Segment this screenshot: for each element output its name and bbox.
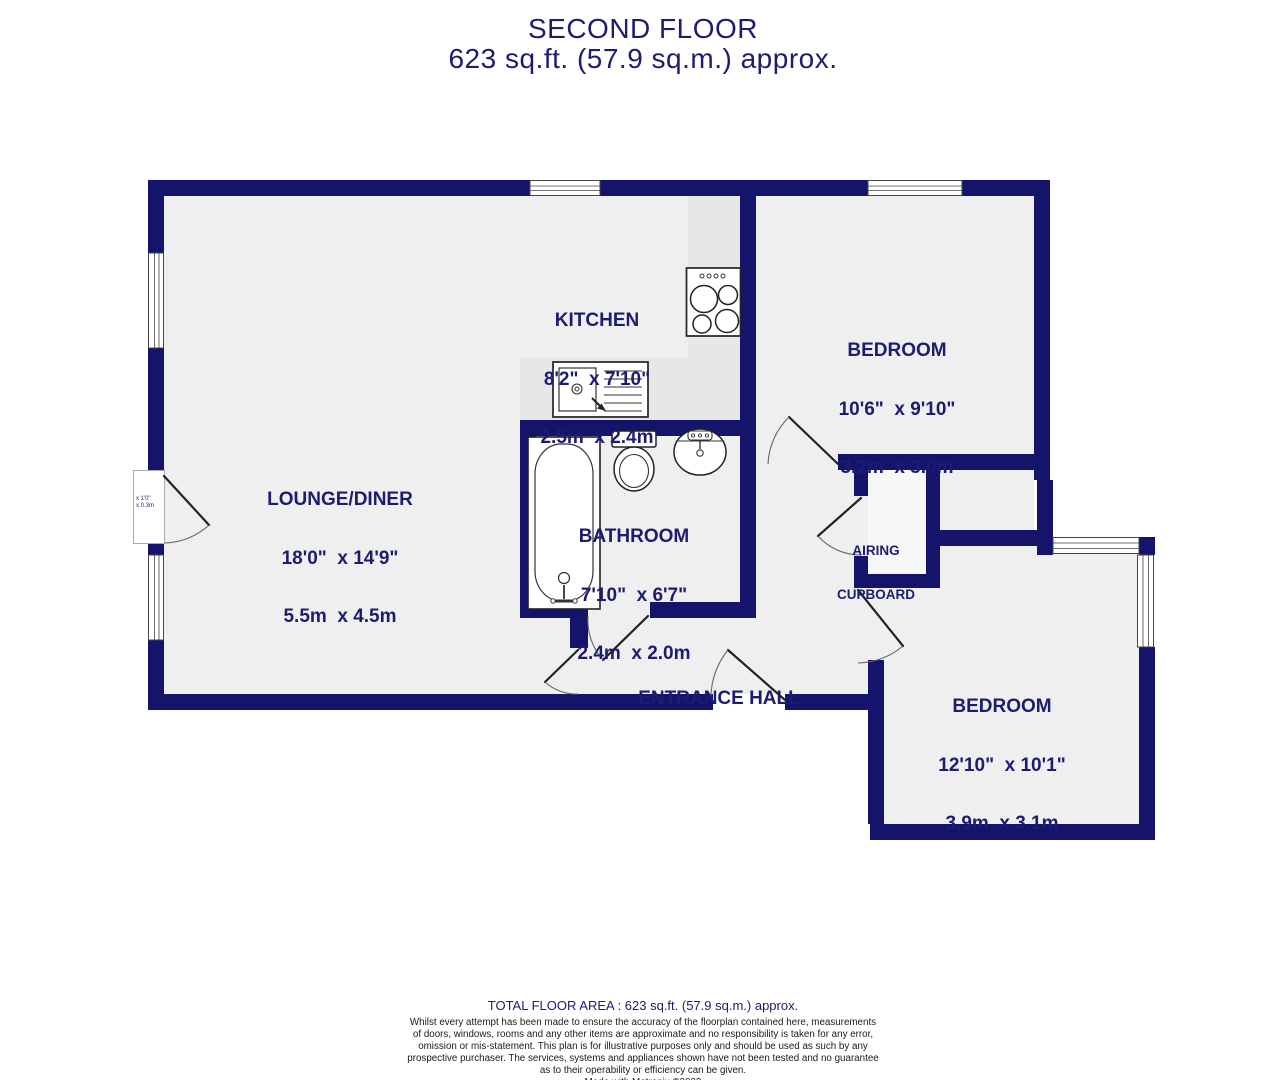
window-left-lower <box>149 555 164 640</box>
wall-top-1 <box>148 180 530 196</box>
wall-bathroom-left <box>520 436 536 618</box>
recess-dimension-label: x 1'0" x 0.3m <box>136 496 164 510</box>
room-name: BEDROOM <box>839 341 956 361</box>
wall-bathroom-right <box>740 420 756 618</box>
room-dims-imperial: 10'6" x 9'10" <box>839 400 956 420</box>
room-dims-metric: 5.5m x 4.5m <box>267 607 413 627</box>
label-bedroom1: BEDROOM 10'6" x 9'10" 3.2m x 3.0m <box>839 302 956 517</box>
wall-right-connector <box>1037 480 1053 537</box>
room-name: AIRING <box>837 544 915 559</box>
label-kitchen: KITCHEN 8'2" x 7'10" 2.5m x 2.4m <box>540 272 653 487</box>
label-lounge-diner: LOUNGE/DINER 18'0" x 14'9" 5.5m x 4.5m <box>267 451 413 666</box>
label-entrance-hall: ENTRANCE HALL <box>638 650 800 748</box>
room-name: LOUNGE/DINER <box>267 490 413 510</box>
room-name: BATHROOM <box>577 527 690 547</box>
window-left-upper <box>149 253 164 348</box>
wall-kitchen-bedroom1 <box>740 196 756 420</box>
wall-corner-block-right <box>1139 537 1155 555</box>
floorplan-page: SECOND FLOOR 623 sq.ft. (57.9 sq.m.) app… <box>0 0 1286 1080</box>
disclaimer: Whilst every attempt has been made to en… <box>0 1017 1286 1077</box>
room-dims-imperial: 7'10" x 6'7" <box>577 586 690 606</box>
room-dims-metric: 3.9m x 3.1m <box>938 814 1065 834</box>
wall-bedroom2-right <box>1139 647 1155 824</box>
wall-right-bedroom1 <box>1034 196 1050 480</box>
floor-title: SECOND FLOOR <box>0 14 1286 44</box>
wall-bedroom2-left <box>868 660 884 824</box>
window-bedroom2-corner-v <box>1138 555 1154 647</box>
wall-top-2 <box>600 180 868 196</box>
room-name: BEDROOM <box>938 697 1065 717</box>
page-title: SECOND FLOOR 623 sq.ft. (57.9 sq.m.) app… <box>0 14 1286 74</box>
room-name: KITCHEN <box>540 311 653 331</box>
label-bedroom2: BEDROOM 12'10" x 10'1" 3.9m x 3.1m <box>938 658 1065 873</box>
room-name: CUPBOARD <box>837 588 915 603</box>
label-airing-cupboard: AIRING CUPBOARD <box>837 515 915 631</box>
room-dims-imperial: 8'2" x 7'10" <box>540 370 653 390</box>
room-dims-imperial: 12'10" x 10'1" <box>938 756 1065 776</box>
window-top-bedroom1 <box>868 181 962 196</box>
wall-left-3 <box>148 543 164 555</box>
room-dims-imperial: 18'0" x 14'9" <box>267 549 413 569</box>
wall-left-2 <box>148 348 164 470</box>
wall-left-4 <box>148 640 164 694</box>
footer: TOTAL FLOOR AREA : 623 sq.ft. (57.9 sq.m… <box>0 998 1286 1080</box>
total-floor-area: TOTAL FLOOR AREA : 623 sq.ft. (57.9 sq.m… <box>0 998 1286 1014</box>
room-dims-metric: 2.5m x 2.4m <box>540 428 653 448</box>
wall-corner-block-left <box>1037 537 1053 555</box>
room-name: ENTRANCE HALL <box>638 689 800 709</box>
floor-area-subtitle: 623 sq.ft. (57.9 sq.m.) approx. <box>0 44 1286 74</box>
room-dims-metric: 3.2m x 3.0m <box>839 458 956 478</box>
kitchen-counter-right <box>688 196 740 357</box>
wall-top-3 <box>962 180 1050 196</box>
window-top-kitchen <box>530 181 600 196</box>
wall-left-1 <box>148 196 164 253</box>
